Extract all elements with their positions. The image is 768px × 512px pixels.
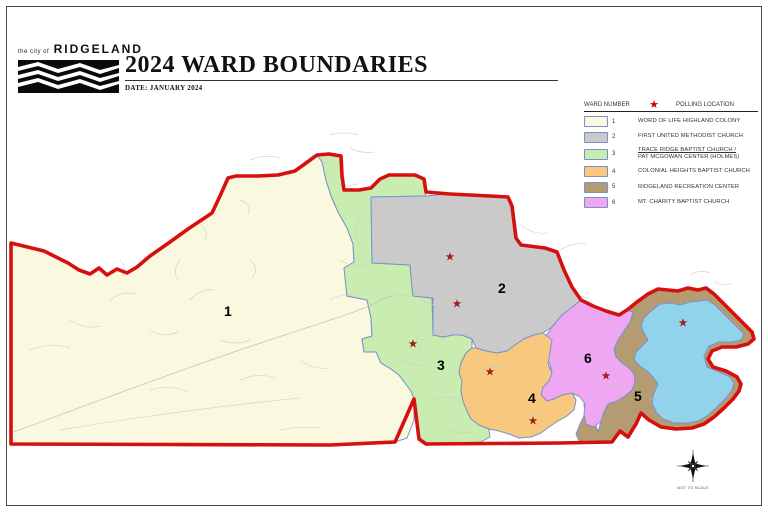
- legend-ward-number: 4: [610, 169, 622, 175]
- logo-waves-icon: [18, 60, 119, 93]
- legend-items: 1 WORD OF LIFE HIGHLAND COLONY 2 FIRST U…: [584, 116, 758, 208]
- legend-polling-name: WORD OF LIFE HIGHLAND COLONY: [622, 118, 758, 125]
- legend-polling-name: TRACE RIDGE BAPTIST CHURCH /PAT MCGOWAN …: [622, 147, 758, 161]
- legend-polling-name: COLONIAL HEIGHTS BAPTIST CHURCH: [622, 168, 758, 175]
- legend-ward-number-header: WARD NUMBER: [584, 102, 646, 108]
- legend-polling-name: RIDGELAND RECREATION CENTER: [622, 184, 758, 191]
- title-block: 2024 WARD BOUNDARIES DATE: JANUARY 2024: [125, 53, 565, 92]
- ward-3-swatch: [584, 149, 608, 160]
- legend-ward-number: 2: [610, 134, 622, 140]
- legend-ward-number: 5: [610, 184, 622, 190]
- legend-ward-number: 3: [610, 151, 622, 157]
- city-logo: the city of RIDGELAND: [18, 40, 122, 93]
- legend-row-ward-1: 1 WORD OF LIFE HIGHLAND COLONY: [584, 116, 758, 127]
- legend-row-ward-6: 6 MT. CHARITY BAPTIST CHURCH: [584, 197, 758, 208]
- legend-ward-number: 1: [610, 119, 622, 125]
- ward-1-swatch: [584, 116, 608, 127]
- legend-polling-location-header: POLLING LOCATION: [662, 102, 758, 108]
- title-rule: [125, 80, 558, 81]
- legend-row-ward-2: 2 FIRST UNITED METHODIST CHURCH: [584, 132, 758, 143]
- legend-ward-number: 6: [610, 200, 622, 206]
- legend-row-ward-3: 3 TRACE RIDGE BAPTIST CHURCH /PAT MCGOWA…: [584, 147, 758, 161]
- legend: WARD NUMBER ★ POLLING LOCATION 1 WORD OF…: [584, 102, 758, 213]
- map-page: NOT TO SCALE 123456★★★★★★★ the city of R…: [0, 0, 768, 512]
- ward-4-swatch: [584, 166, 608, 177]
- legend-header: WARD NUMBER ★ POLLING LOCATION: [584, 102, 758, 112]
- ward-2-swatch: [584, 132, 608, 143]
- ward-6-swatch: [584, 197, 608, 208]
- polling-star-icon: ★: [646, 102, 662, 108]
- legend-polling-name: FIRST UNITED METHODIST CHURCH: [622, 133, 758, 140]
- date-line: DATE: JANUARY 2024: [125, 84, 565, 92]
- ward-5-swatch: [584, 182, 608, 193]
- legend-row-ward-5: 5 RIDGELAND RECREATION CENTER: [584, 182, 758, 193]
- legend-polling-name: MT. CHARITY BAPTIST CHURCH: [622, 199, 758, 206]
- legend-row-ward-4: 4 COLONIAL HEIGHTS BAPTIST CHURCH: [584, 166, 758, 177]
- page-title: 2024 WARD BOUNDARIES: [125, 53, 565, 78]
- logo-small-text: the city of: [18, 49, 49, 55]
